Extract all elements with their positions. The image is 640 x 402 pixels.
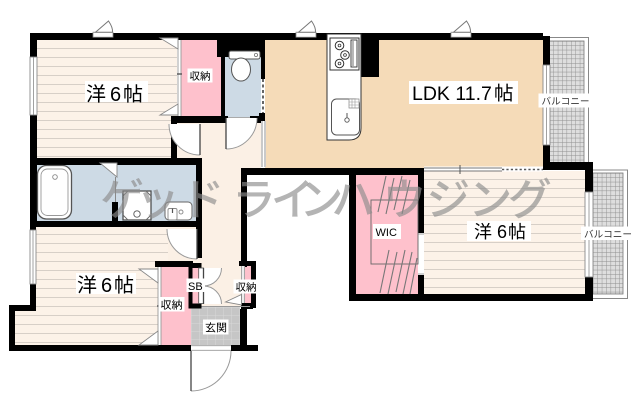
svg-text:WIC: WIC bbox=[376, 227, 397, 239]
svg-text:6: 6 bbox=[110, 84, 121, 106]
svg-text:6: 6 bbox=[497, 222, 507, 242]
svg-text:SB: SB bbox=[188, 281, 203, 293]
svg-text:6: 6 bbox=[101, 275, 112, 297]
svg-text:LDK 11.7: LDK 11.7 bbox=[412, 83, 492, 105]
